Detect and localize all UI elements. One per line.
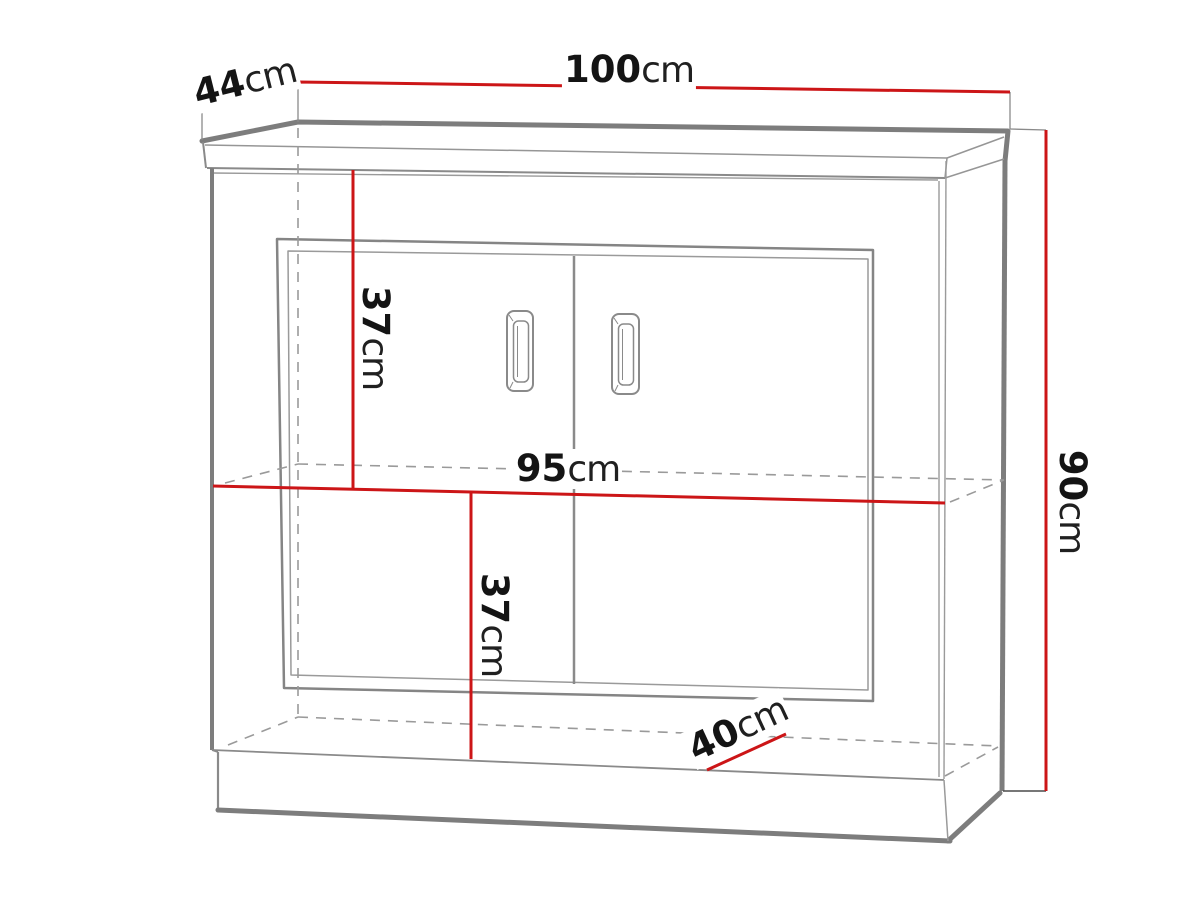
top-panel	[202, 122, 1008, 178]
dimension-value: 37	[354, 286, 397, 338]
dimension-value: 100	[564, 48, 641, 91]
dimension-unit: cm	[641, 50, 694, 91]
diagram-canvas: 100cm 44cm 90cm 37cm 95cm 37cm 40cm	[0, 0, 1200, 900]
dimension-label-overall-width: 100cm	[562, 50, 696, 90]
dimension-label-upper-compartment: 37cm	[355, 284, 395, 392]
dimension-unit: cm	[1051, 501, 1092, 554]
plinth-base	[212, 750, 950, 841]
dimension-unit: cm	[354, 337, 395, 390]
dimension-lines-red	[202, 82, 1046, 791]
door-handle-left	[507, 311, 533, 391]
dimension-unit: cm	[567, 449, 620, 490]
door-handle-right	[612, 314, 639, 394]
dimension-label-lower-compartment: 37cm	[474, 571, 514, 679]
dimension-unit: cm	[473, 624, 514, 677]
dimension-value: 90	[1051, 450, 1094, 502]
dimension-value: 37	[473, 573, 516, 625]
dimension-value: 95	[516, 447, 568, 490]
dimension-label-interior-width: 95cm	[514, 449, 622, 489]
dimension-label-overall-height: 90cm	[1052, 448, 1092, 556]
